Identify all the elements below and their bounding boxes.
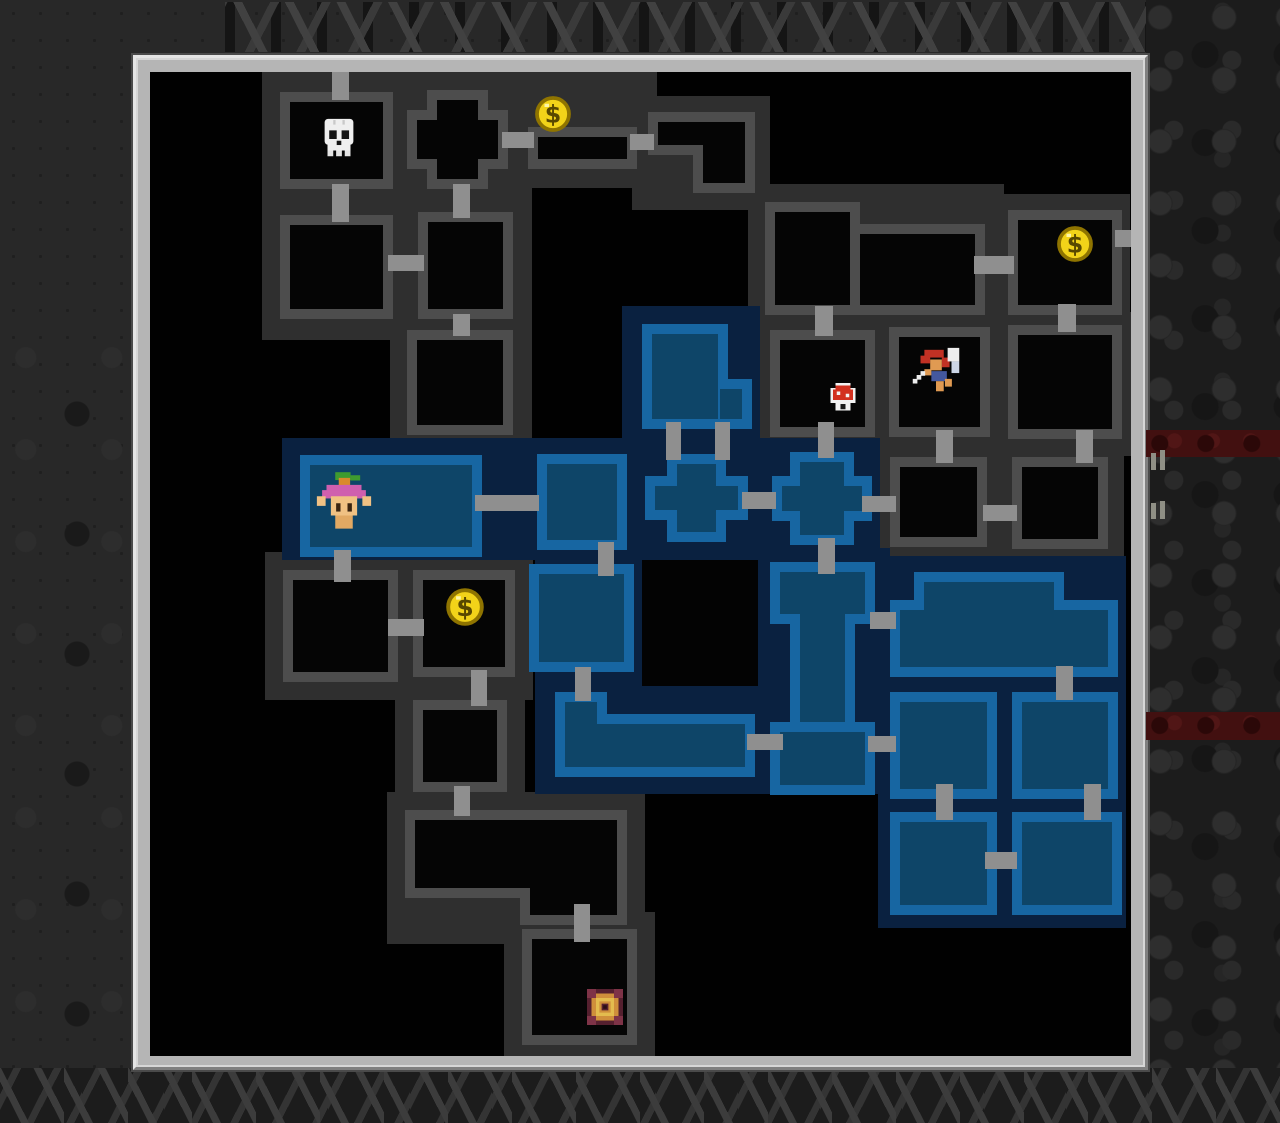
room-l-shape-floor	[703, 122, 745, 183]
corridor	[574, 904, 590, 942]
corridor	[471, 670, 487, 706]
corridor	[575, 667, 591, 701]
cave-rocks-right	[1146, 0, 1280, 1123]
room-wide-topright-floor	[860, 234, 975, 305]
game-screen: $$$	[0, 0, 1280, 1123]
corridor	[598, 542, 614, 576]
room-below-coinmid-floor	[423, 710, 497, 782]
coin-icon: $	[1055, 224, 1095, 264]
warrior-icon	[905, 344, 967, 406]
lava-stripe	[1146, 712, 1280, 740]
corridor	[475, 495, 539, 511]
corridor	[388, 255, 424, 271]
corridor	[936, 430, 953, 463]
corridor	[818, 538, 835, 574]
bone-pillar-decor	[1160, 501, 1165, 519]
corridor	[1058, 304, 1076, 332]
corridor	[453, 184, 470, 218]
room-blue-t-floor	[720, 389, 742, 419]
room-blue-ibeam-floor	[800, 612, 845, 722]
corridor	[630, 134, 654, 150]
room-cross-top-floor	[417, 120, 498, 159]
lava-stripe	[1146, 430, 1280, 457]
cave-arch-decor	[225, 2, 1165, 52]
skull-icon	[316, 116, 362, 162]
room-blue-big-floor	[924, 582, 1054, 667]
corridor	[388, 619, 424, 636]
room-blue-ibeam-floor	[780, 572, 865, 614]
room-wide-bottom-floor	[530, 820, 617, 915]
room-right-row2-floor	[1018, 335, 1112, 429]
corridor	[983, 505, 1017, 521]
room-blue-cross2-floor	[782, 486, 862, 511]
coin-icon: $	[533, 94, 573, 134]
corridor	[870, 612, 896, 629]
bone-pillar-decor	[1160, 450, 1165, 470]
bone-pillar-decor	[1151, 503, 1156, 519]
room-below-skull-floor	[290, 225, 383, 309]
corridor	[334, 550, 351, 582]
unexplored-patch	[642, 560, 758, 686]
room-mid-row3a-floor	[900, 467, 977, 537]
room-col2-row1-floor	[428, 222, 503, 309]
room-mid-row3b-floor	[1022, 467, 1098, 539]
corridor	[742, 492, 776, 509]
corridor	[454, 786, 470, 816]
room-coin-top-floor	[538, 137, 627, 159]
room-blue-g1-floor	[900, 822, 987, 905]
room-blue-mid-floor	[547, 464, 617, 540]
corridor	[818, 422, 834, 458]
svg-text:$: $	[1067, 231, 1084, 259]
cave-rocks-left	[0, 330, 133, 1070]
bone-pillar-decor	[1151, 453, 1156, 470]
corridor	[747, 734, 783, 750]
room-blue-cross1-floor	[655, 486, 738, 510]
corridor	[936, 784, 953, 820]
corridor	[1115, 230, 1131, 247]
corridor	[666, 422, 681, 460]
corridor	[868, 736, 896, 752]
corridor	[332, 72, 349, 100]
room-blue-wide-floor	[565, 724, 745, 767]
corridor	[974, 256, 1014, 274]
corridor	[715, 422, 730, 460]
elf-icon	[309, 470, 379, 540]
corridor	[1076, 430, 1093, 463]
corridor	[502, 132, 534, 148]
room-blue-t-floor	[652, 334, 718, 419]
minimap-frame: $$$	[133, 55, 1148, 1070]
svg-text:$: $	[456, 593, 473, 622]
stairs-icon	[587, 989, 623, 1025]
room-blue-g2-floor	[1022, 822, 1112, 905]
corridor	[1084, 784, 1101, 820]
corridor	[862, 496, 896, 512]
corridor	[815, 306, 833, 336]
corridor	[1056, 666, 1073, 700]
room-col2-row2-floor	[417, 340, 503, 425]
mushroom-icon	[823, 378, 863, 418]
room-blue-a4-floor	[539, 574, 624, 662]
corridor	[332, 184, 349, 222]
room-wide-topright-floor	[775, 212, 850, 305]
room-blue-f1-floor	[900, 702, 987, 789]
corridor	[453, 314, 470, 336]
cave-rocks-bottom	[0, 1068, 1280, 1123]
room-left-row4-floor	[293, 580, 388, 672]
svg-text:$: $	[545, 101, 562, 129]
minimap: $$$	[150, 72, 1131, 1056]
coin-icon: $	[444, 586, 486, 628]
room-blue-ibeam-floor	[780, 732, 865, 785]
room-blue-f2-floor	[1022, 702, 1108, 789]
corridor	[985, 852, 1017, 869]
